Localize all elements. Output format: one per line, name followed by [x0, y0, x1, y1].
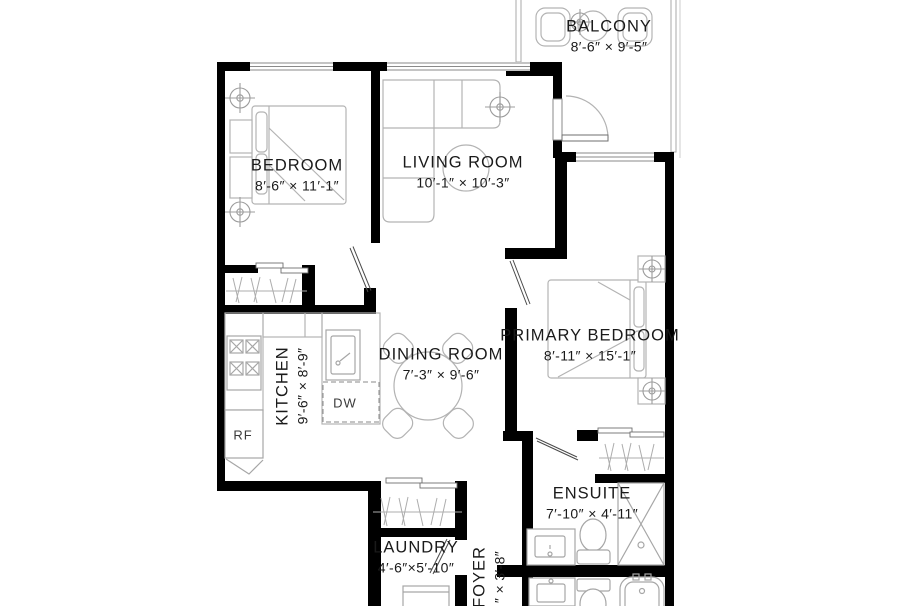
living-room-window	[387, 62, 530, 71]
hall-closet-sliding-door	[386, 478, 457, 488]
room-label-kitchen: KITCHEN 9′-6″ × 8′-9″	[273, 346, 312, 425]
bedroom-door	[350, 247, 371, 293]
room-name: DINING ROOM	[379, 345, 504, 365]
room-name: BALCONY	[566, 17, 652, 37]
room-dimensions: ″ × 3′-8″	[492, 546, 509, 606]
room-name: LAUNDRY	[373, 538, 459, 558]
bedroom-window	[250, 62, 333, 71]
room-name: ENSUITE	[546, 484, 638, 504]
sectional-sofa	[383, 80, 500, 222]
kitchen-sink	[326, 330, 360, 380]
bath-vanity-sink	[529, 578, 575, 606]
hall-closet-hangers	[373, 497, 462, 526]
primary-bedroom-window	[576, 152, 654, 162]
room-label-living-room: LIVING ROOM 10′-1″ × 10′-3″	[402, 153, 523, 192]
room-dimensions: 9′-6″ × 8′-9″	[295, 346, 312, 425]
floor-plan-drawing	[0, 0, 910, 606]
primary-closet-sliding-door	[598, 428, 664, 437]
room-label-bedroom: BEDROOM 8′-6″ × 11′-1″	[251, 156, 343, 195]
primary-bedroom-door	[510, 260, 530, 305]
room-label-dining-room: DINING ROOM 7′-3″ × 9′-6″	[379, 345, 504, 384]
bath-toilet	[577, 579, 610, 606]
bedroom-closet-sliding-door	[256, 263, 308, 273]
ceiling-light-icon	[225, 197, 255, 227]
room-dimensions: 4′-6″×5′-10″	[373, 560, 459, 577]
bedroom-closet-hangers	[226, 277, 307, 303]
room-label-laundry: LAUNDRY 4′-6″×5′-10″	[373, 538, 459, 577]
room-name: PRIMARY BEDROOM	[500, 326, 679, 346]
room-dimensions: 10′-1″ × 10′-3″	[402, 175, 523, 192]
room-name: LIVING ROOM	[402, 153, 523, 173]
room-dimensions: 7′-3″ × 9′-6″	[379, 367, 504, 384]
room-label-ensuite: ENSUITE 7′-10″ × 4′-11″	[546, 484, 638, 523]
primary-closet-hangers	[599, 443, 664, 471]
stove	[227, 336, 261, 390]
dishwasher-label: DW	[333, 396, 357, 411]
room-label-balcony: BALCONY 8′-6″ × 9′-5″	[566, 17, 652, 56]
bathtub	[620, 574, 664, 606]
room-label-foyer: FOYER ″ × 3′-8″	[470, 546, 509, 606]
room-label-primary-bedroom: PRIMARY BEDROOM 8′-11″ × 15′-1″	[500, 326, 679, 365]
room-name: BEDROOM	[251, 156, 343, 176]
ensuite-door	[536, 438, 578, 460]
ceiling-light-icon	[225, 83, 255, 113]
washer	[403, 586, 449, 606]
room-dimensions: 8′-11″ × 15′-1″	[500, 348, 679, 365]
room-dimensions: 8′-6″ × 11′-1″	[251, 178, 343, 195]
balcony-door	[553, 96, 608, 141]
balcony-chair	[536, 8, 570, 46]
room-dimensions: 7′-10″ × 4′-11″	[546, 506, 638, 523]
ensuite-vanity-sink	[527, 529, 575, 565]
room-name: KITCHEN	[273, 346, 293, 425]
bedroom-nightstand	[230, 120, 252, 198]
floor-plan: BALCONY 8′-6″ × 9′-5″ BEDROOM 8′-6″ × 11…	[0, 0, 910, 606]
ensuite-toilet	[577, 519, 610, 564]
room-name: FOYER	[470, 546, 490, 606]
room-dimensions: 8′-6″ × 9′-5″	[566, 39, 652, 56]
refrigerator-label: RF	[233, 428, 252, 443]
